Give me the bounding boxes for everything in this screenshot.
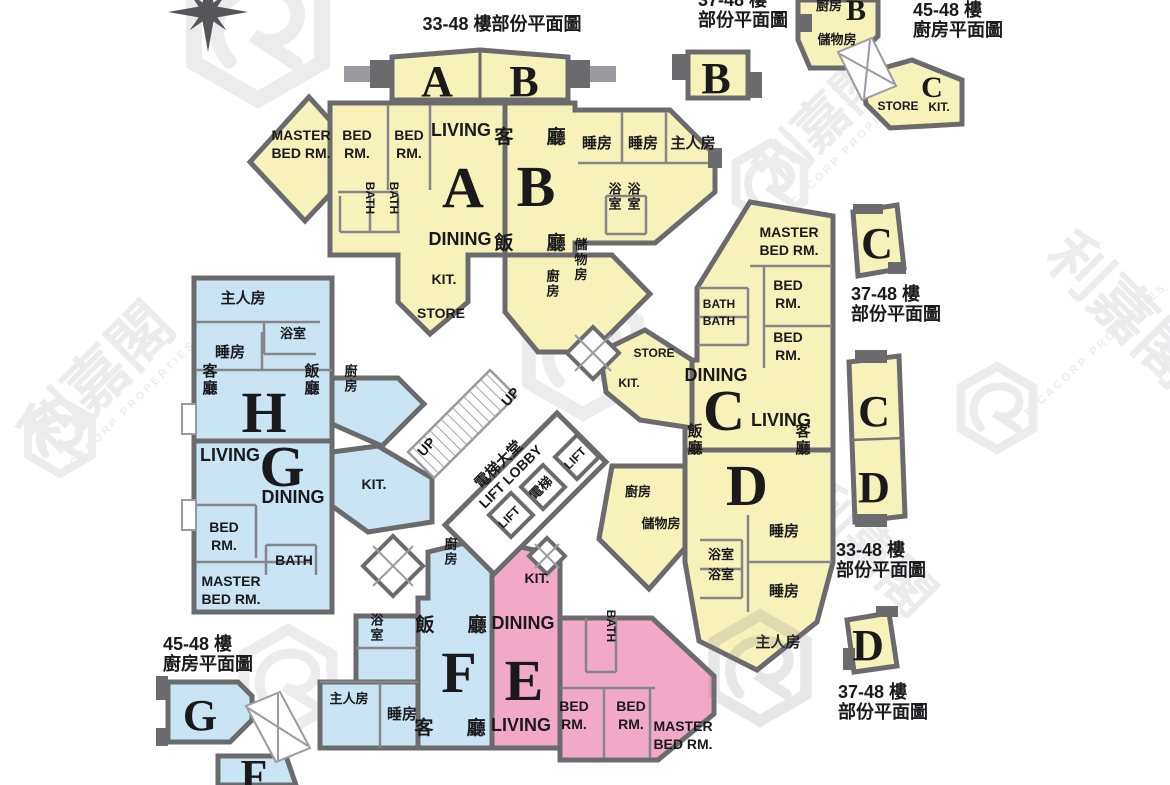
room-label-e-bath: BATH: [604, 610, 618, 642]
room-label-f-dining: 飯 廳: [414, 613, 500, 636]
title-floor-37-48-right: 部份平面圖: [851, 303, 941, 324]
room-label-a-master: BED RM.: [271, 145, 330, 161]
floorplan-page: 利嘉閣 RICACORP PROPERTIES 利嘉閣 RICACORP PRO…: [0, 0, 1170, 785]
room-label-e-master: MASTER: [653, 718, 712, 734]
room-label-a-master: MASTER: [271, 127, 330, 143]
room-label-d-store: 儲物房: [640, 516, 680, 531]
room-label-h-bath: 浴室: [280, 326, 306, 341]
unit-c-kitchen-area: [600, 330, 692, 428]
room-label-c-kitchen: KIT.: [618, 376, 639, 390]
room-label-g-master: MASTER: [201, 573, 260, 589]
title-kitchen-45-48-top: 45-48 樓: [913, 0, 982, 20]
unit-h-letter: H: [241, 380, 286, 445]
room-label-g-living: LIVING: [200, 445, 260, 465]
room-label-f-bed: 睡房: [387, 705, 417, 723]
unit-b-letter: B: [517, 154, 556, 219]
room-label-h-kitchen: 廚房: [343, 363, 358, 394]
small-plan-c-letter: C: [861, 219, 893, 268]
room-label-f-kitchen: 廚房: [443, 536, 458, 567]
small-plan-kitchen-b-store: 儲物房: [816, 32, 856, 47]
title-floor-37-48-right: 37-48 樓: [851, 283, 920, 304]
room-label-c-bed2: RM.: [775, 347, 801, 363]
room-label-f-living: 客 廳: [414, 716, 499, 739]
room-label-a-dining: DINING: [429, 229, 492, 249]
room-label-e-kitchen: KIT.: [525, 570, 550, 586]
room-label-d-bed1: 睡房: [769, 522, 799, 540]
title-floor-37-48-bottom: 部份平面圖: [838, 701, 928, 722]
room-label-e-bed1: RM.: [561, 716, 587, 732]
unit-d-letter: D: [726, 453, 768, 518]
room-label-f-master: 主人房: [329, 691, 368, 706]
room-label-a-living: LIVING: [431, 120, 491, 140]
small-plan-kitchen-b-label: 廚房: [816, 0, 842, 13]
room-label-d-bath1: 浴室: [708, 547, 734, 562]
room-label-e-master: BED RM.: [653, 736, 712, 752]
small-plan-ab-letter-a: A: [421, 57, 453, 106]
room-label-a-store: STORE: [417, 305, 465, 321]
small-plan-kitchen-b-letter: B: [846, 0, 866, 27]
room-label-c-master: MASTER: [759, 224, 818, 240]
room-label-c-bed2: BED: [773, 329, 803, 345]
title-kitchen-45-48-top: 廚房平面圖: [913, 19, 1003, 40]
room-label-a-bed1: RM.: [344, 145, 370, 161]
small-plan-cd-letter-d: D: [858, 463, 890, 512]
room-label-g-bed: RM.: [211, 537, 237, 553]
room-label-d-bed2: 睡房: [769, 582, 799, 600]
small-plan-d-letter: D: [852, 621, 884, 670]
title-floor-33-48-main: 33-48 樓部份平面圖: [422, 13, 581, 34]
title-floor-33-48-right: 部份平面圖: [836, 559, 926, 580]
room-label-b-living: 客 廳: [494, 125, 579, 148]
small-plan-cd-letter-c: C: [858, 387, 890, 436]
room-label-e-bed2: BED: [616, 698, 646, 714]
unit-c-letter: C: [703, 378, 745, 443]
room-label-h-dining: 飯廳: [303, 362, 321, 397]
title-floor-37-48-top: 37-48 樓: [698, 0, 767, 10]
room-label-e-living: LIVING: [491, 715, 551, 735]
title-floor-33-48-right: 33-48 樓: [836, 539, 905, 560]
room-label-b-store: 儲物房: [573, 237, 589, 283]
room-label-g-bath: BATH: [275, 552, 313, 568]
room-label-h-living: 客廳: [201, 362, 219, 397]
room-label-e-bed1: BED: [559, 698, 589, 714]
room-label-c-master: BED RM.: [759, 242, 818, 258]
room-label-c-bath2: BATH: [703, 314, 735, 328]
room-label-g-bed: BED: [209, 519, 239, 535]
ricacorp-logo-icon: [961, 367, 1033, 450]
room-label-d-kitchen: 廚房: [625, 484, 651, 499]
room-label-d-living: 客廳: [794, 422, 812, 457]
room-label-a-bed2: BED: [394, 127, 424, 143]
room-label-c-bed1: BED: [773, 277, 803, 293]
small-plan-b-letter: B: [701, 54, 730, 103]
room-label-b-bed1: 睡房: [582, 134, 612, 152]
floorplan-svg: 利嘉閣 RICACORP PROPERTIES 利嘉閣 RICACORP PRO…: [0, 0, 1170, 785]
unit-e-letter: E: [505, 648, 544, 713]
title-kitchen-45-48-bottom: 45-48 樓: [163, 633, 232, 654]
room-label-f-bath: 浴室: [369, 612, 384, 643]
room-label-d-dining: 飯廳: [686, 422, 704, 457]
room-label-a-bath1: BATH: [363, 182, 377, 214]
watermark-text: 利嘉閣 RICACORP PROPERTIES: [6, 289, 198, 481]
svg-text:利嘉閣: 利嘉閣: [1032, 220, 1170, 400]
room-label-g-master: BED RM.: [201, 591, 260, 607]
room-label-b-kitchen: 廚房: [545, 268, 560, 299]
room-label-a-kitchen: KIT.: [432, 271, 457, 287]
watermark-text: 利嘉閣: [1032, 220, 1170, 400]
small-plan-kitchen-c-store: STORE: [877, 99, 918, 113]
small-plan-f-letter: F: [241, 751, 268, 785]
room-label-a-bath2: BATH: [387, 182, 401, 214]
room-label-g-kitchen: KIT.: [362, 476, 387, 492]
unit-a-letter: A: [442, 155, 484, 220]
room-label-c-store: STORE: [633, 346, 674, 360]
compass-icon: [168, 0, 248, 52]
small-plan-g-letter: G: [183, 691, 217, 740]
room-label-a-bed1: BED: [342, 127, 372, 143]
title-kitchen-45-48-bottom: 廚房平面圖: [163, 653, 253, 674]
room-label-h-master: 主人房: [220, 289, 265, 307]
room-label-b-bath2: 浴室: [626, 181, 641, 212]
room-label-c-bed1: RM.: [775, 295, 801, 311]
small-plan-ab-letter-b: B: [509, 57, 538, 106]
room-label-b-master: 主人房: [670, 134, 715, 152]
room-label-e-dining: DINING: [492, 613, 555, 633]
title-floor-37-48-bottom: 37-48 樓: [838, 681, 907, 702]
room-label-c-bath1: BATH: [703, 297, 735, 311]
room-label-b-dining: 飯 廳: [493, 231, 579, 254]
room-label-b-bath1: 浴室: [607, 181, 622, 212]
room-label-e-bed2: RM.: [618, 716, 644, 732]
unit-f-letter: F: [441, 640, 476, 705]
room-label-a-bed2: RM.: [396, 145, 422, 161]
small-plan-kitchen-c-kit: KIT.: [928, 100, 949, 114]
room-label-g-dining: DINING: [262, 487, 325, 507]
room-label-d-bath2: 浴室: [708, 567, 734, 582]
title-floor-37-48-top: 部份平面圖: [698, 9, 788, 30]
room-label-h-bed: 睡房: [215, 343, 245, 361]
room-label-b-bed2: 睡房: [628, 134, 658, 152]
